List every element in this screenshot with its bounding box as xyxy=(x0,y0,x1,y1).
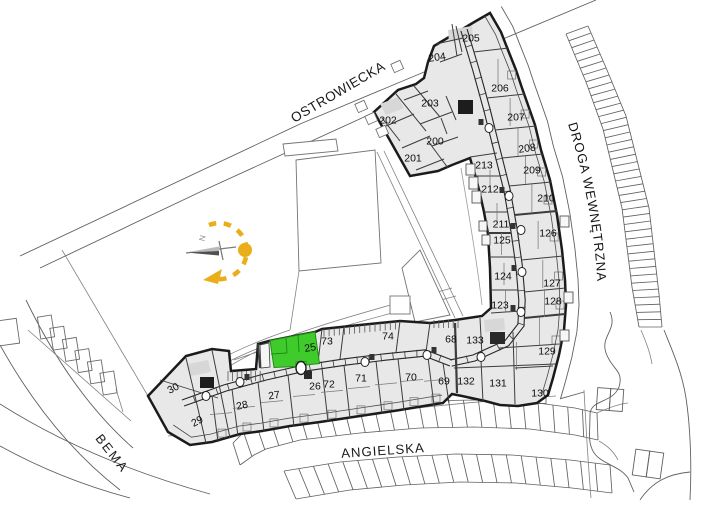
svg-text:207: 207 xyxy=(507,112,525,124)
svg-text:213: 213 xyxy=(475,160,493,172)
svg-text:202: 202 xyxy=(379,115,397,127)
svg-text:203: 203 xyxy=(421,98,439,110)
svg-text:205: 205 xyxy=(462,33,480,45)
svg-text:133: 133 xyxy=(466,335,484,347)
svg-text:26: 26 xyxy=(309,381,321,393)
svg-text:204: 204 xyxy=(428,51,447,65)
svg-text:200: 200 xyxy=(426,136,444,148)
svg-text:74: 74 xyxy=(382,331,394,343)
svg-text:71: 71 xyxy=(355,373,367,385)
svg-text:201: 201 xyxy=(404,153,422,165)
svg-text:25: 25 xyxy=(303,341,317,355)
svg-text:128: 128 xyxy=(544,296,562,308)
svg-text:210: 210 xyxy=(537,193,555,205)
svg-text:68: 68 xyxy=(445,334,457,346)
svg-text:211: 211 xyxy=(493,219,510,231)
svg-text:132: 132 xyxy=(457,376,475,388)
svg-text:212: 212 xyxy=(481,184,499,196)
svg-text:209: 209 xyxy=(523,165,541,177)
svg-text:123: 123 xyxy=(491,300,509,312)
svg-text:124: 124 xyxy=(494,271,512,283)
svg-text:72: 72 xyxy=(323,379,335,391)
svg-text:70: 70 xyxy=(405,372,417,384)
svg-text:131: 131 xyxy=(489,378,507,390)
svg-text:73: 73 xyxy=(321,336,333,348)
svg-text:129: 129 xyxy=(538,346,556,358)
svg-text:206: 206 xyxy=(491,83,509,95)
svg-text:130: 130 xyxy=(531,388,549,400)
svg-text:27: 27 xyxy=(267,389,280,403)
svg-text:126: 126 xyxy=(539,228,557,240)
svg-text:208: 208 xyxy=(518,142,537,156)
svg-text:69: 69 xyxy=(438,376,450,388)
svg-text:125: 125 xyxy=(493,235,511,247)
svg-text:127: 127 xyxy=(543,278,561,290)
